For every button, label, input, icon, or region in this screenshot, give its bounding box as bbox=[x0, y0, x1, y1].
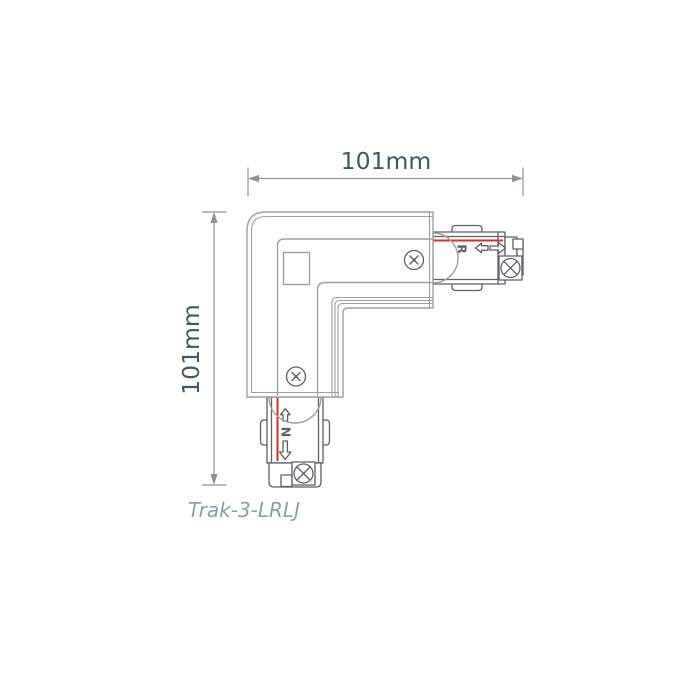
cap-notch bbox=[281, 475, 292, 487]
top-dimension: 101mm bbox=[248, 147, 523, 196]
screw-icon bbox=[405, 251, 424, 270]
l-connector-body bbox=[247, 212, 458, 423]
cross-socket-icon bbox=[292, 462, 315, 485]
connector-profile bbox=[267, 397, 323, 463]
bottom-track-connector: N bbox=[261, 397, 330, 487]
arrowhead-icon bbox=[210, 474, 217, 485]
elbow-chamfer-lines bbox=[332, 298, 433, 398]
technical-drawing: R N bbox=[0, 0, 700, 700]
bottom-connector-marking: N bbox=[279, 427, 294, 437]
drawing-canvas: R N bbox=[0, 0, 700, 700]
cross-socket-icon bbox=[499, 256, 522, 280]
arrowhead-icon bbox=[248, 175, 259, 182]
top-dimension-label: 101mm bbox=[341, 147, 432, 175]
product-code-label: Trak-3-LRLJ bbox=[188, 498, 300, 522]
screw-icon bbox=[287, 367, 306, 386]
left-dimension: 101mm bbox=[177, 212, 227, 485]
left-dimension-label: 101mm bbox=[177, 304, 205, 395]
arrowhead-icon bbox=[512, 175, 523, 182]
cap-notch bbox=[513, 239, 523, 249]
right-track-connector: R bbox=[433, 226, 523, 291]
arrowhead-icon bbox=[210, 212, 217, 223]
